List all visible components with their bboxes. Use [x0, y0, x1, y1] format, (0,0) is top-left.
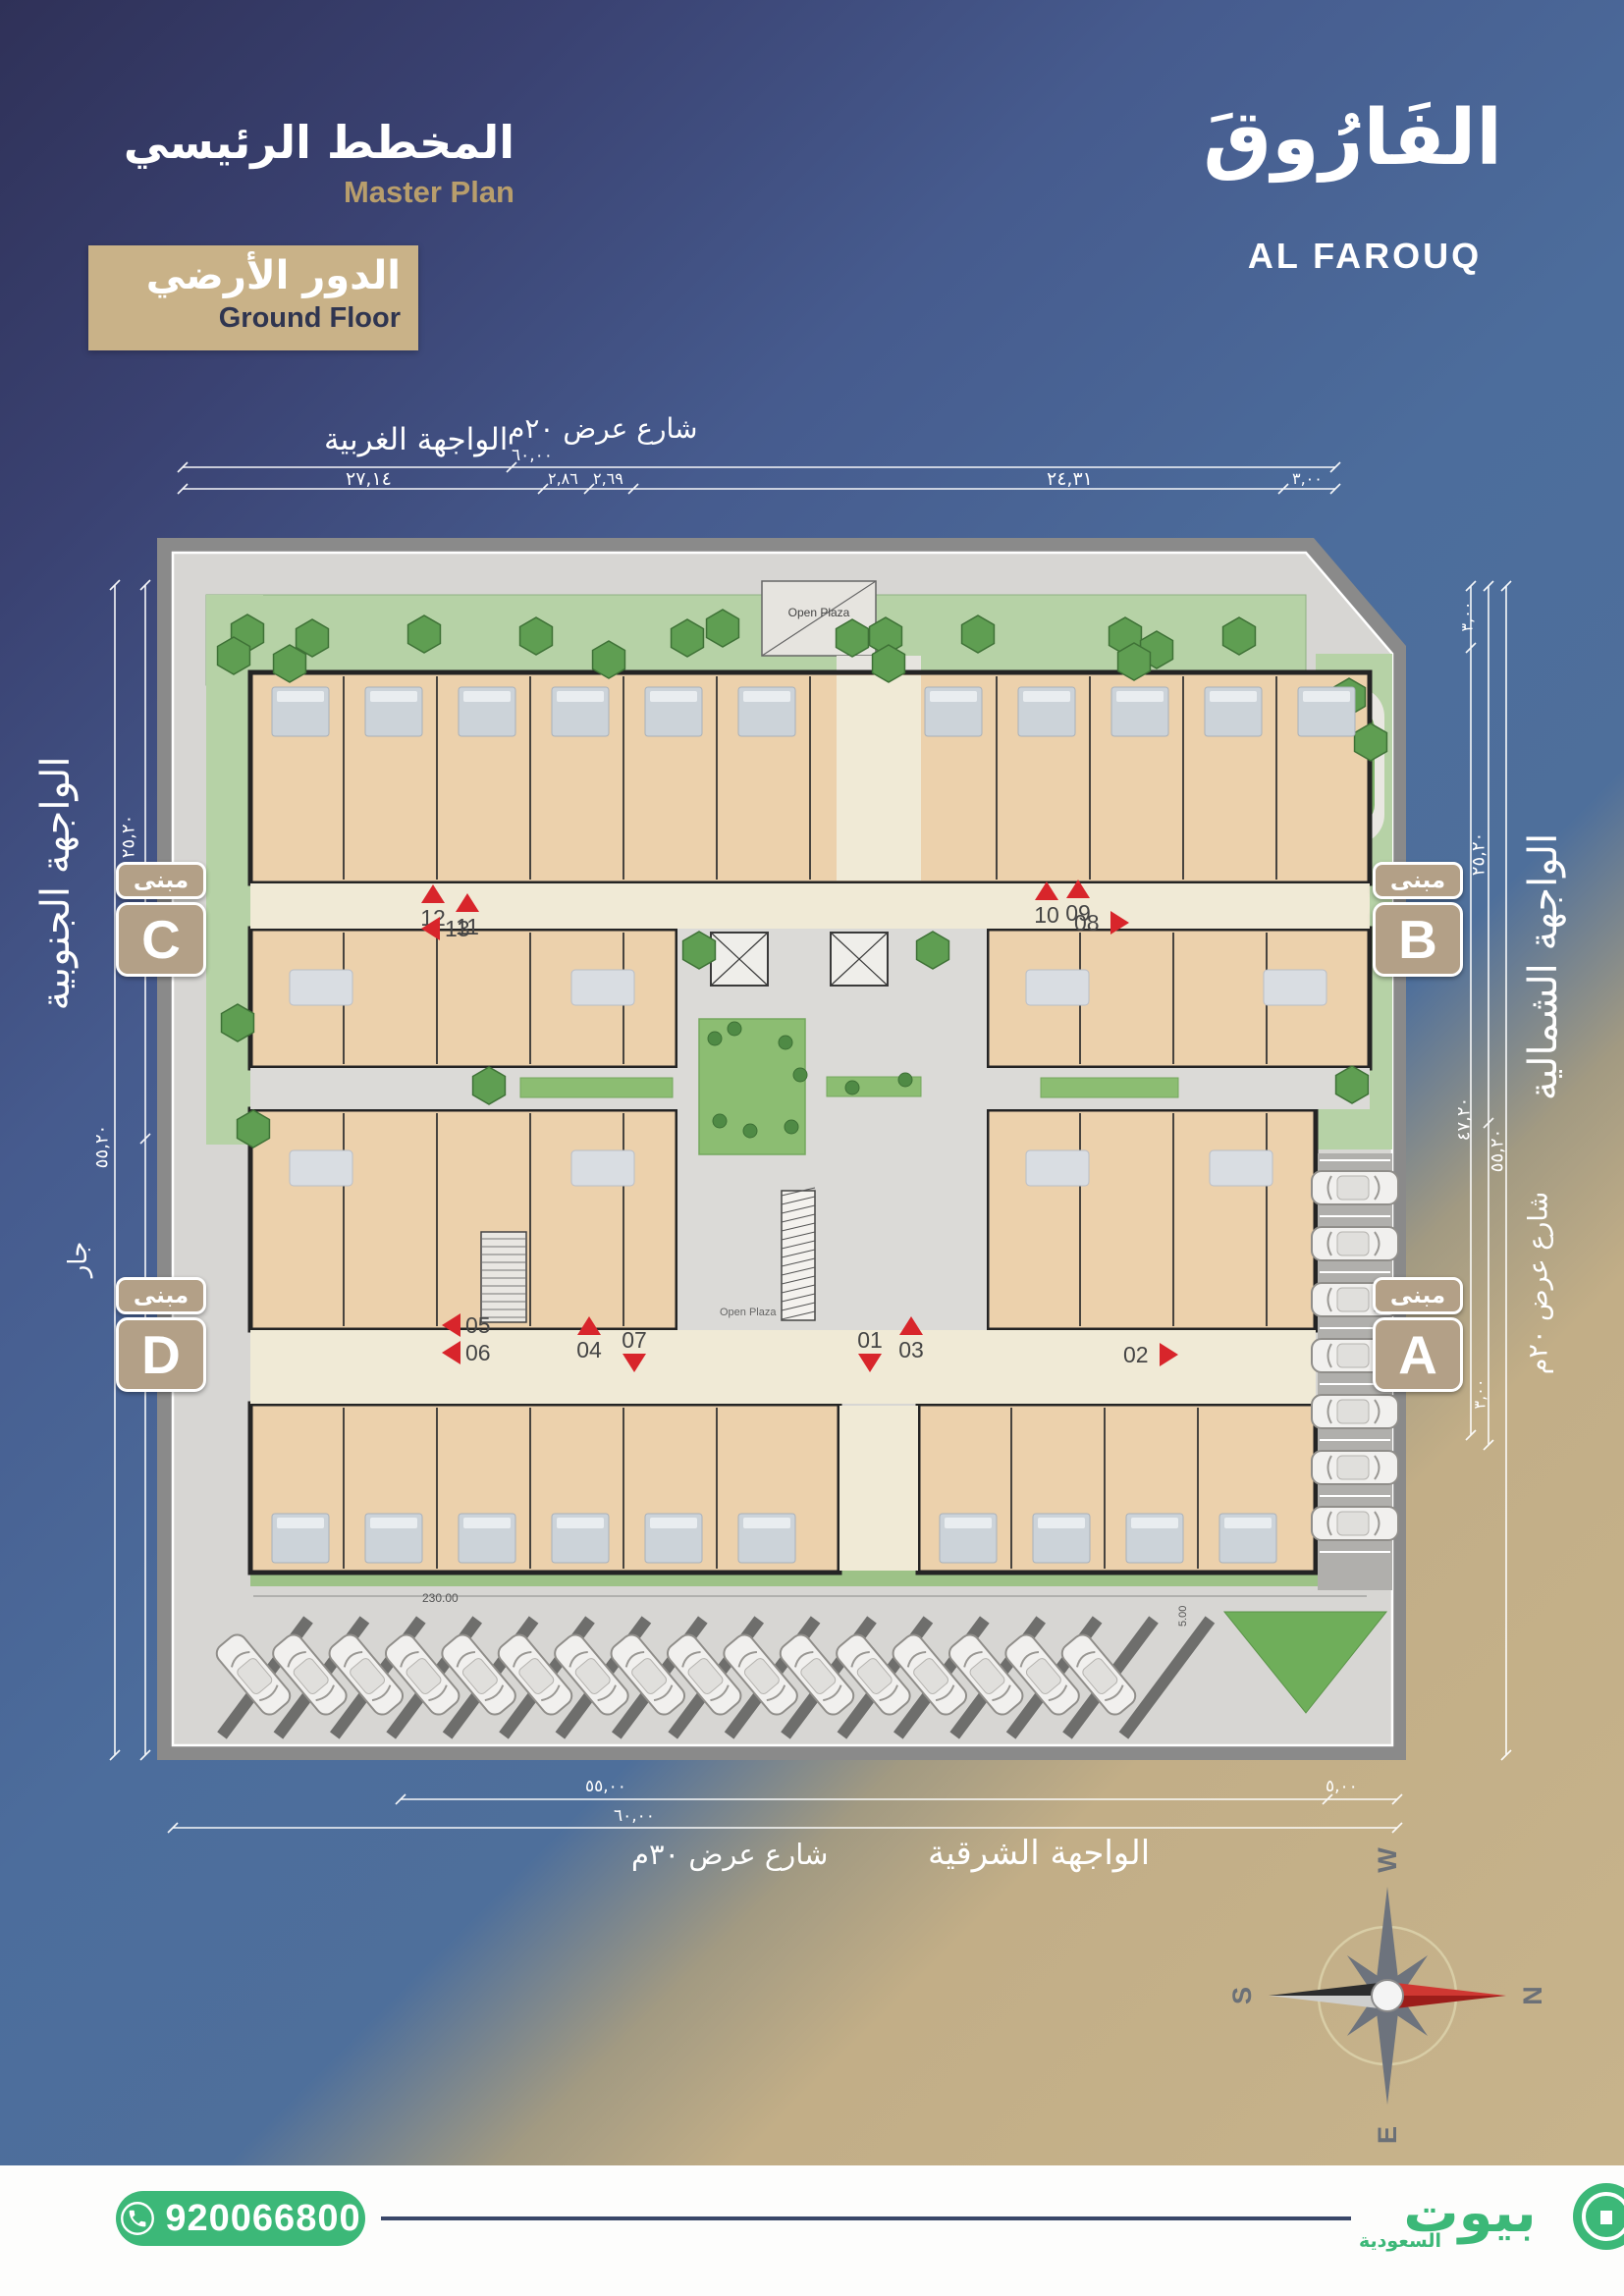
unit-marker-03: 03	[898, 1337, 924, 1363]
unit-marker-arrow-icon	[623, 1354, 646, 1372]
unit-marker-10: 10	[1034, 902, 1059, 929]
building-badge-letter: A	[1373, 1317, 1463, 1392]
unit-marker-arrow-icon	[577, 1316, 601, 1335]
building-badge-letter: B	[1373, 902, 1463, 977]
phone-icon	[120, 2201, 155, 2236]
unit-marker-07: 07	[622, 1327, 647, 1354]
building-badge-d: مبنىD	[116, 1277, 206, 1392]
unit-marker-arrow-icon	[421, 884, 445, 903]
unit-marker-arrow-icon	[1160, 1343, 1178, 1366]
unit-marker-02: 02	[1123, 1342, 1149, 1368]
unit-marker-arrow-icon	[858, 1354, 882, 1372]
unit-marker-06: 06	[465, 1340, 491, 1366]
unit-marker-arrow-icon	[442, 1341, 460, 1364]
building-badge-c: مبنىC	[116, 862, 206, 977]
building-badge-label: مبنى	[116, 1277, 206, 1314]
unit-marker-arrow-icon	[456, 893, 479, 912]
bayut-sub-label: السعودية	[1353, 2230, 1447, 2252]
building-badge-b: مبنىB	[1373, 862, 1463, 977]
building-badge-label: مبنى	[1373, 1277, 1463, 1314]
unit-marker-arrow-icon	[899, 1316, 923, 1335]
unit-marker-08: 08	[1074, 910, 1100, 936]
building-badge-label: مبنى	[1373, 862, 1463, 899]
unit-marker-arrow-icon	[442, 1313, 460, 1337]
unit-marker-arrow-icon	[1035, 881, 1058, 900]
unit-marker-01: 01	[857, 1327, 883, 1354]
unit-marker-arrow-icon	[1110, 911, 1129, 934]
building-badge-letter: C	[116, 902, 206, 977]
unit-marker-04: 04	[576, 1337, 602, 1363]
building-badge-letter: D	[116, 1317, 206, 1392]
building-badge-a: مبنىA	[1373, 1277, 1463, 1392]
unit-marker-arrow-icon	[421, 917, 440, 940]
footer-divider	[381, 2216, 1351, 2220]
unit-marker-11: 11	[456, 914, 479, 940]
phone-number: 920066800	[165, 2198, 360, 2240]
building-badge-label: مبنى	[116, 862, 206, 899]
phone-button[interactable]: 920066800	[116, 2191, 365, 2246]
master-plan-page: Open Plaza	[0, 0, 1624, 2296]
bayut-mark-icon	[1567, 2181, 1624, 2260]
unit-marker-arrow-icon	[1066, 880, 1090, 898]
unit-marker-05: 05	[465, 1312, 491, 1339]
